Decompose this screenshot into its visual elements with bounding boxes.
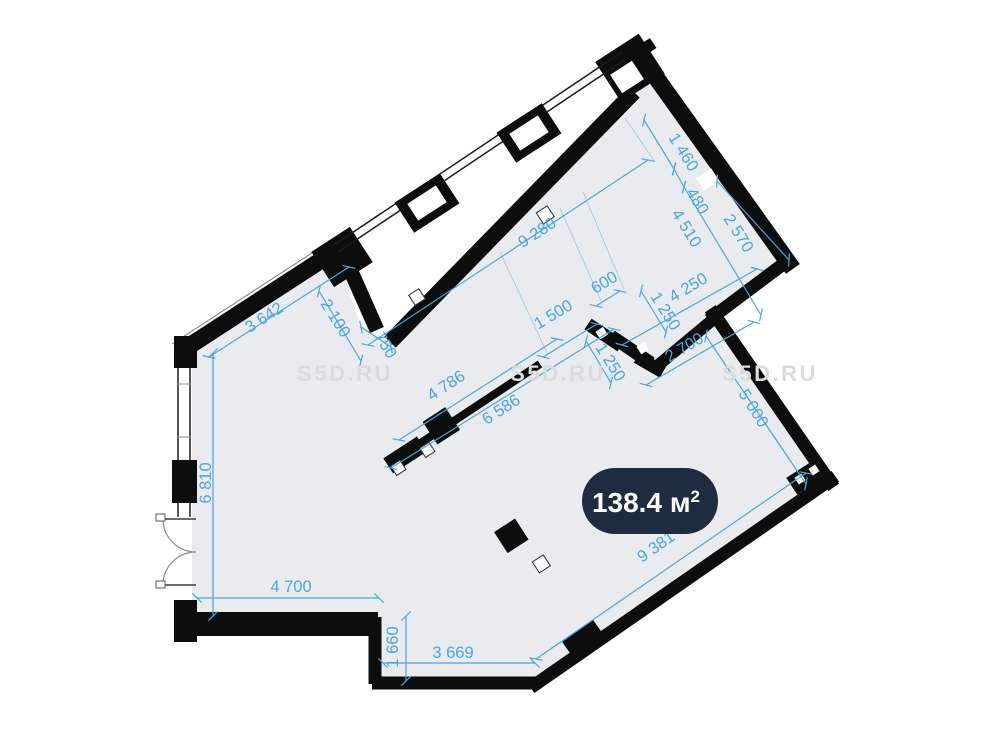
dim-label: 6 810 (197, 462, 215, 503)
dim-tick (748, 320, 761, 323)
door-plate-bottom (156, 581, 165, 588)
dim-tick (717, 175, 718, 188)
dim-tick (759, 309, 762, 322)
dim-tick (789, 254, 790, 267)
area-badge-label: 138.4 м2 (592, 487, 700, 518)
area-badge: 138.4 м2 (582, 468, 718, 534)
door-swing-bottom (163, 552, 196, 585)
door-plate-top (156, 514, 165, 521)
watermark-row: S5D.RU S5D.RU S5D.RU (297, 361, 818, 386)
area-value: 138.4 (592, 487, 662, 518)
dim-label: 3 669 (432, 644, 473, 662)
left-wall-pier-top (174, 336, 197, 368)
watermark-text: S5D.RU (722, 361, 818, 386)
area-unit: м (662, 487, 691, 518)
watermark-text: S5D.RU (297, 361, 393, 386)
floor-plan: 9 280 1 460 480 4 510 2 570 600 4 250 1 … (0, 0, 1000, 750)
area-superscript: 2 (691, 487, 700, 506)
left-wall-pier-bottom (174, 600, 197, 642)
watermark-text: S5D.RU (510, 361, 606, 386)
door-swing-top (163, 519, 196, 552)
dim-label: 4 700 (270, 578, 311, 596)
dim-label: 1 660 (384, 626, 402, 667)
left-wall-pier-mid (172, 460, 197, 503)
entrance-door (156, 514, 196, 588)
